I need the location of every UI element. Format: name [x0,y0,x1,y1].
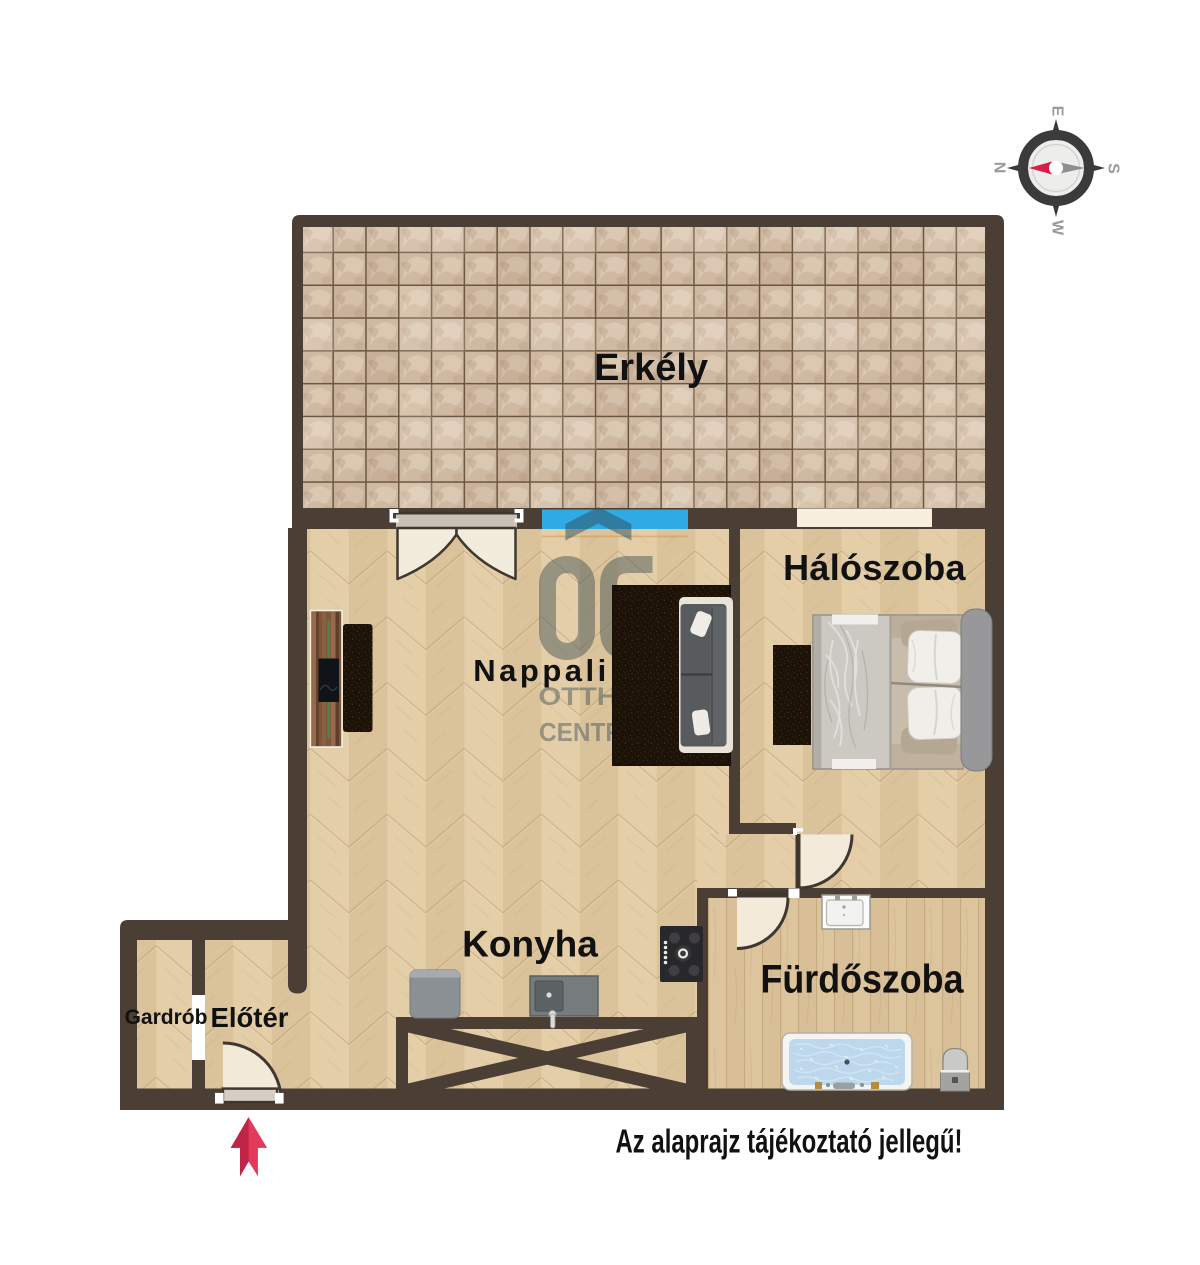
svg-text:Hálószoba: Hálószoba [783,547,966,588]
svg-text:Az alaprajz tájékoztató jelleg: Az alaprajz tájékoztató jellegű! [616,1124,963,1161]
svg-text:N: N [991,162,1008,174]
svg-text:Erkély: Erkély [594,347,708,389]
svg-text:Gardrób: Gardrób [125,1006,208,1029]
svg-text:Nappali: Nappali [473,653,609,688]
svg-text:Fürdőszoba: Fürdőszoba [761,958,965,1002]
svg-text:S: S [1105,163,1122,174]
svg-text:Konyha: Konyha [462,924,598,965]
svg-text:E: E [1049,106,1066,117]
svg-text:Előtér: Előtér [211,1002,289,1033]
svg-text:W: W [1049,220,1066,236]
